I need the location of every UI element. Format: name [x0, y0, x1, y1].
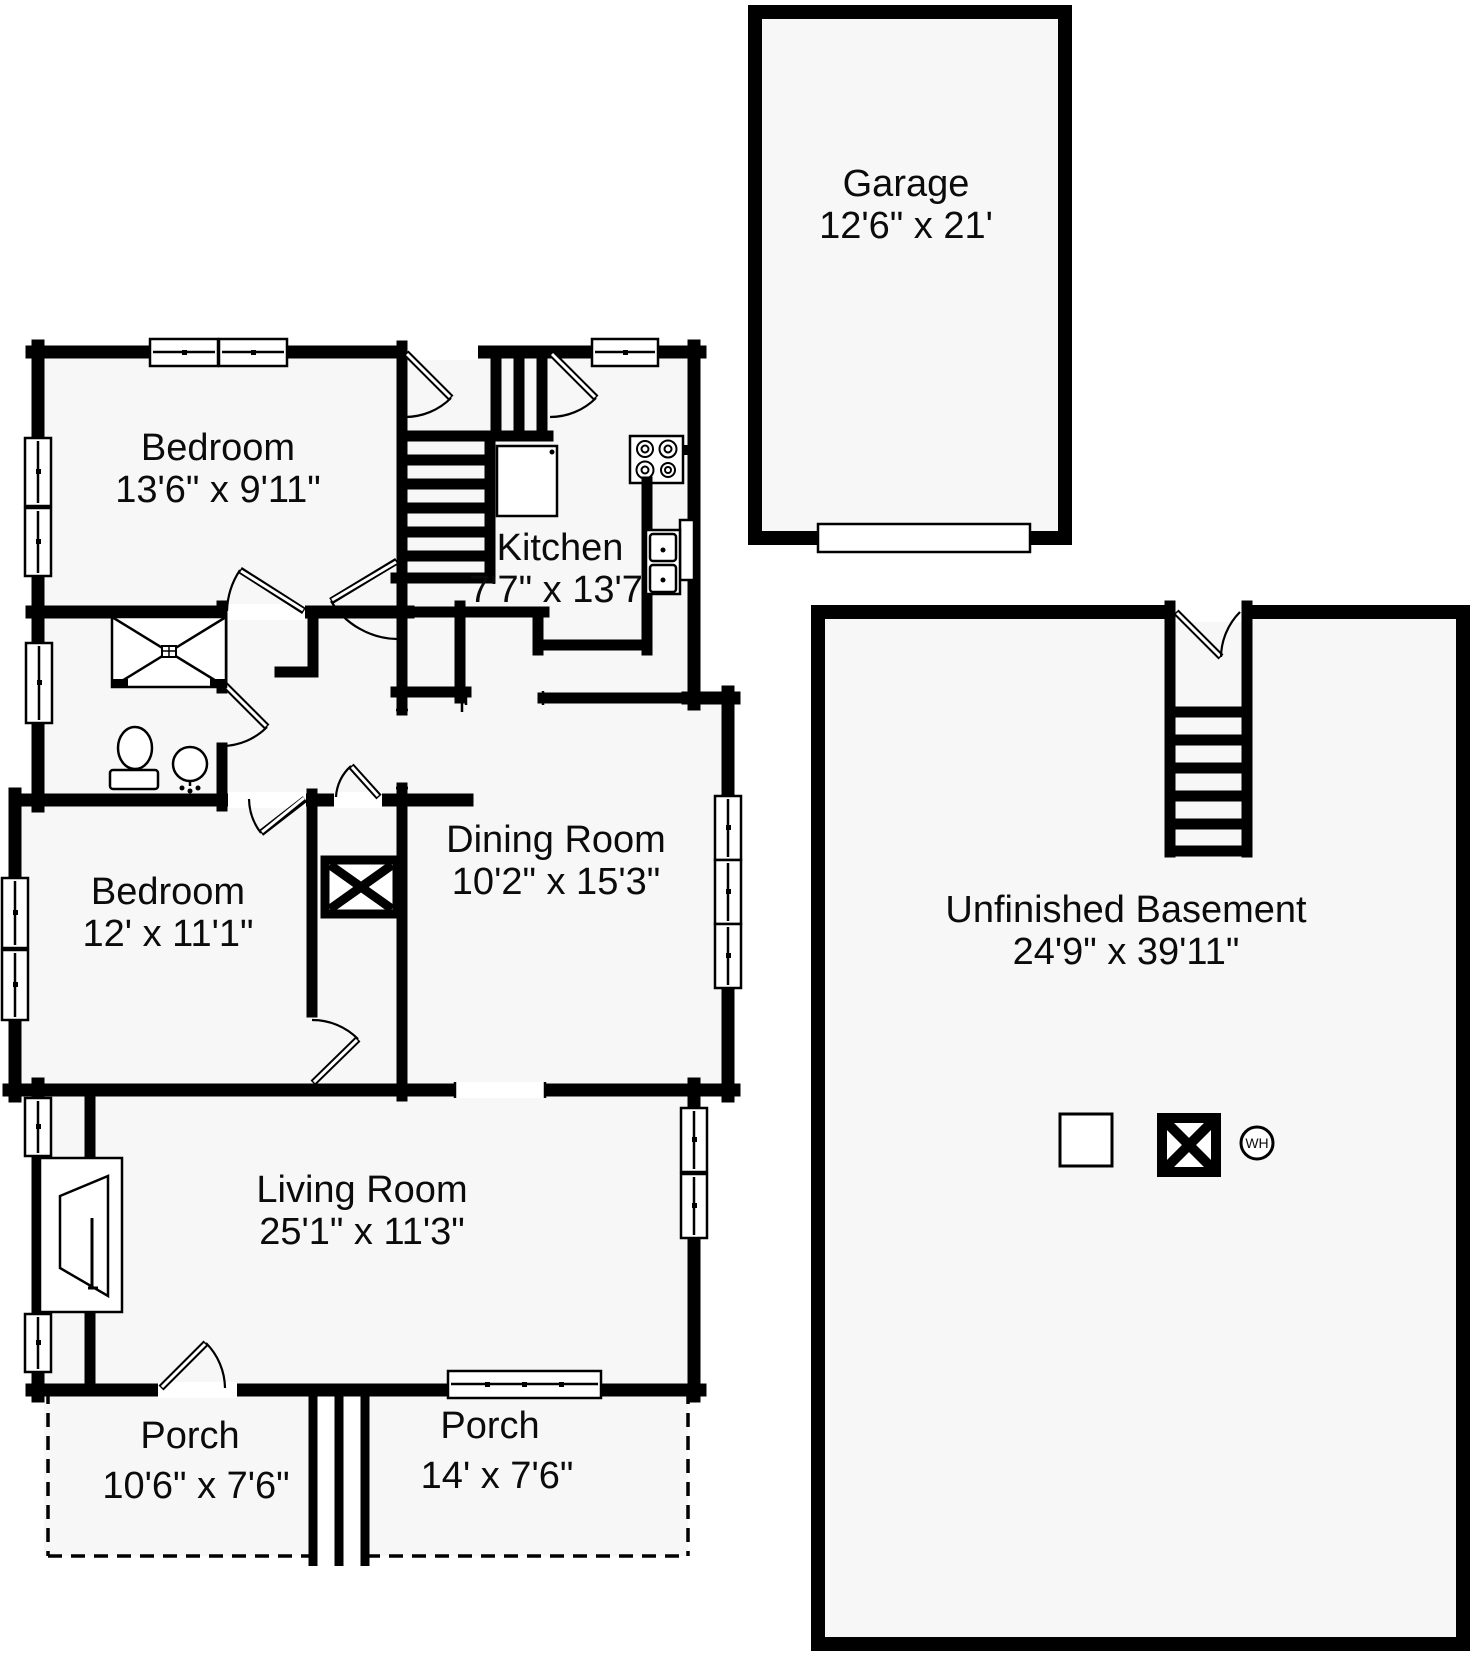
window [25, 438, 51, 506]
kitchen-dims: 7'7" x 13'7 [469, 569, 643, 611]
window [219, 339, 287, 366]
living-label: Living Room [256, 1169, 467, 1211]
floor-plan-drawing: Garage 12'6" x 21' Unfinished Basement 2… [0, 0, 1475, 1658]
porch-right-dims: 14' x 7'6" [421, 1455, 574, 1497]
garage-label: Garage [843, 163, 970, 205]
garage-dims: 12'6" x 21' [819, 205, 993, 247]
support-post-symbol [1060, 1114, 1112, 1166]
shower [112, 617, 226, 687]
refrigerator [497, 446, 557, 516]
window [681, 1108, 707, 1172]
basement-dims: 24'9" x 39'11" [1013, 931, 1240, 973]
dining-dims: 10'2" x 15'3" [452, 861, 660, 903]
bedroom1-dims: 13'6" x 9'11" [115, 469, 321, 511]
window [715, 860, 741, 924]
window [681, 1174, 707, 1238]
porch-left-dims: 10'6" x 7'6" [102, 1465, 289, 1507]
porch-left-label: Porch [140, 1415, 239, 1457]
basement-label: Unfinished Basement [945, 889, 1307, 931]
window [715, 796, 741, 860]
garage-door [818, 524, 1030, 552]
water-heater-label: WH [1245, 1135, 1268, 1151]
window [592, 339, 658, 366]
window [715, 924, 741, 988]
window [25, 508, 51, 576]
bedroom2-label: Bedroom [91, 871, 245, 913]
water-heater-symbol: WH [1241, 1127, 1273, 1159]
window [25, 1098, 51, 1156]
kitchen-label: Kitchen [497, 527, 624, 569]
window [25, 1314, 51, 1372]
chimney-symbol-basement [1162, 1118, 1216, 1172]
window [2, 950, 28, 1020]
window [150, 339, 218, 366]
porch-right-label: Porch [440, 1405, 539, 1447]
bedroom2-dims: 12' x 11'1" [83, 913, 254, 955]
dining-label: Dining Room [446, 819, 666, 861]
window [26, 643, 52, 723]
porch-steps [313, 1388, 365, 1566]
bedroom1-label: Bedroom [141, 427, 295, 469]
chimney-symbol-main [325, 860, 397, 914]
window [2, 878, 28, 948]
window [448, 1371, 601, 1398]
floor-plan-page: Garage 12'6" x 21' Unfinished Basement 2… [0, 0, 1475, 1658]
living-dims: 25'1" x 11'3" [259, 1211, 465, 1253]
